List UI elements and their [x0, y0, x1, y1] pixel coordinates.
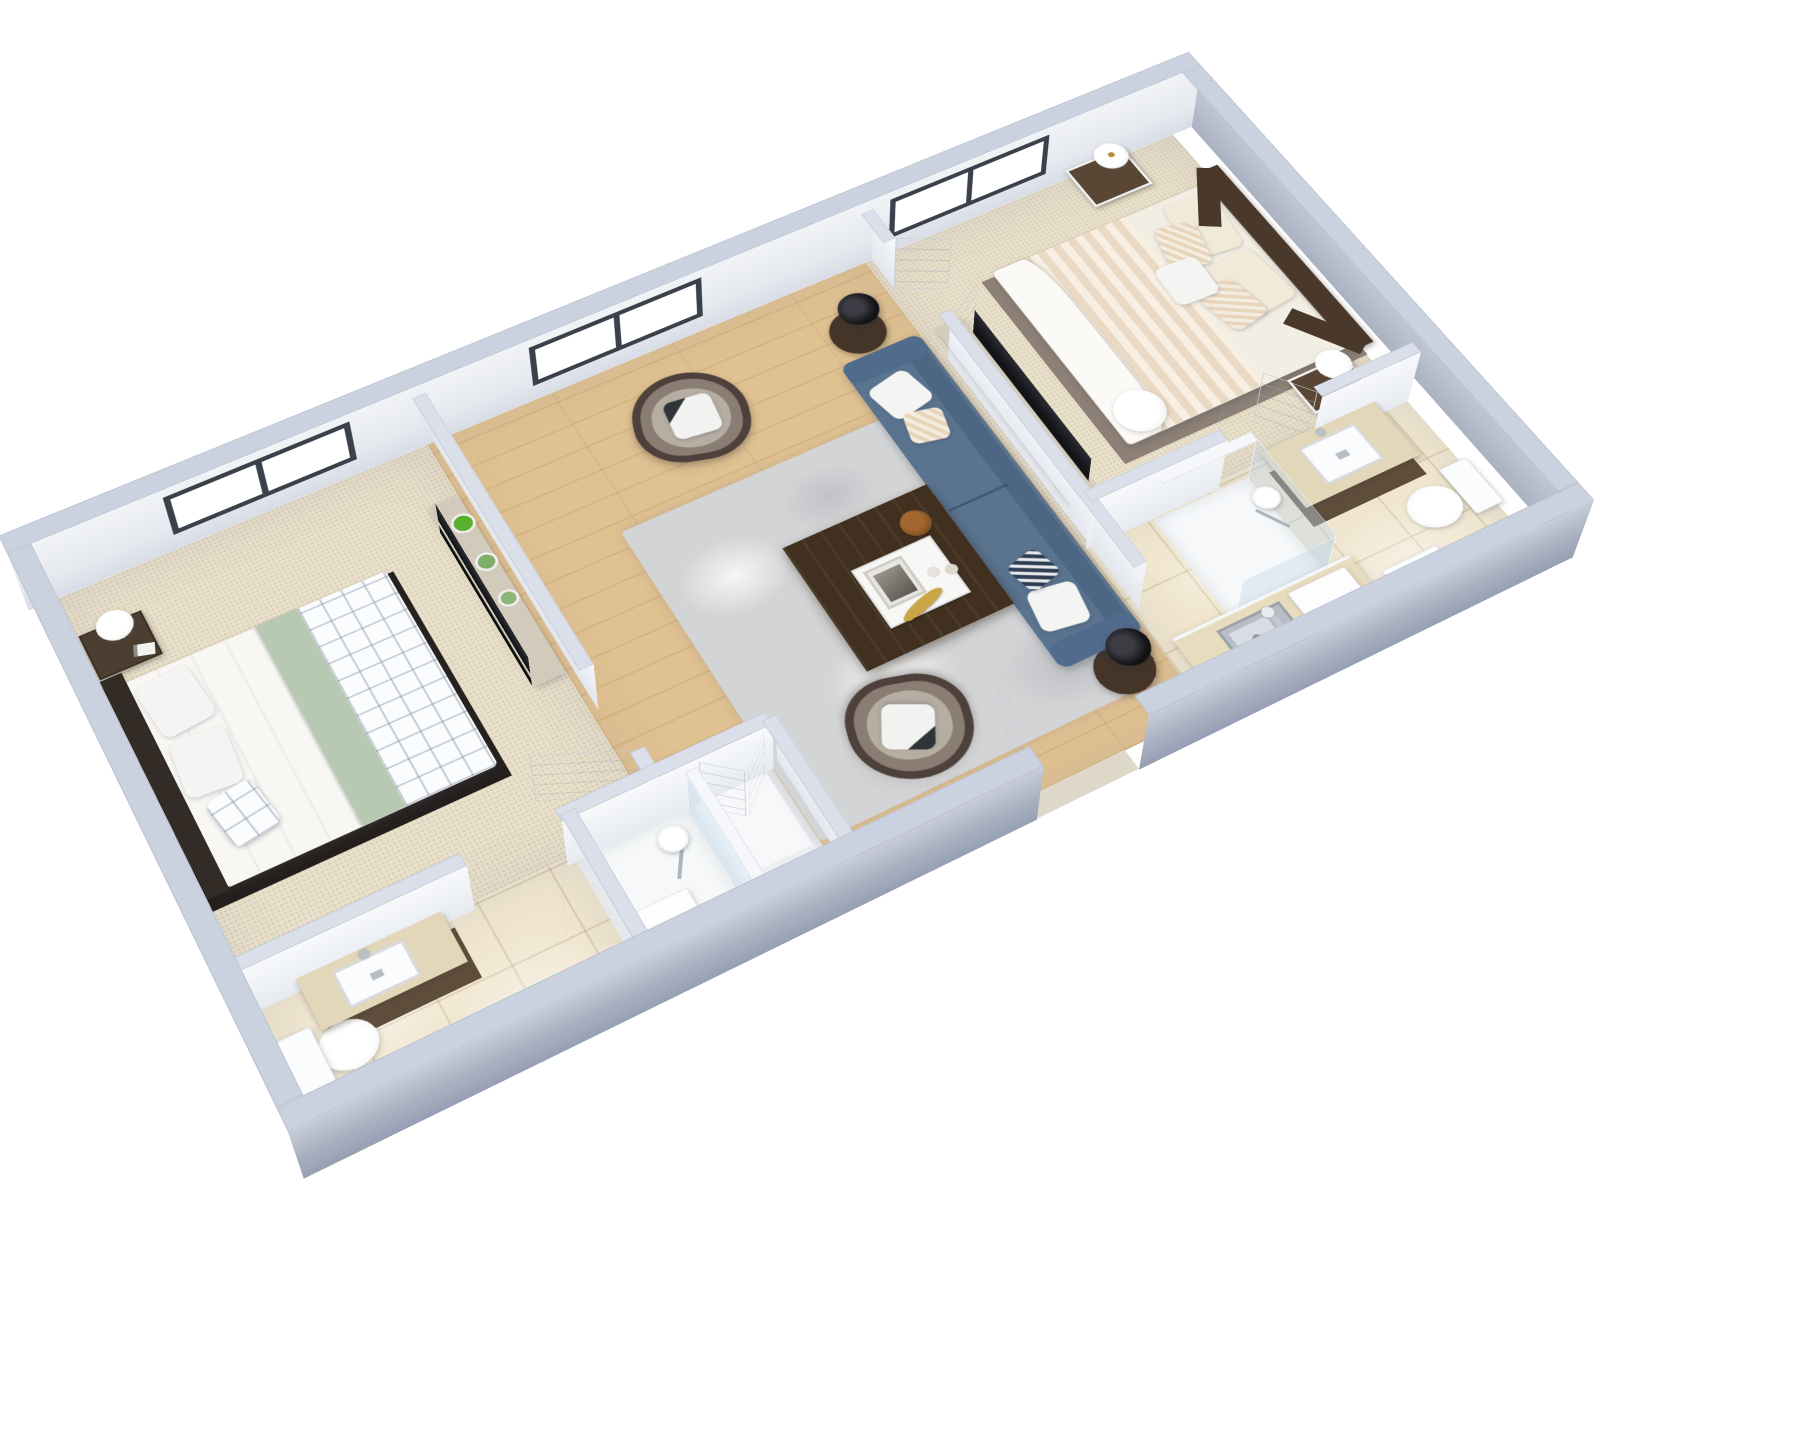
bed3-headboard-wing-top	[1196, 168, 1221, 227]
master-door-leaf-top	[894, 238, 952, 289]
photo-art	[873, 564, 918, 602]
decor-bowl	[894, 506, 938, 541]
vanity3-drain	[1335, 449, 1351, 460]
sofa-pillow-striped-top	[902, 406, 953, 445]
vanity3-sink	[1298, 423, 1385, 485]
sofa-seat-split	[949, 484, 1009, 512]
render-canvas	[0, 0, 1798, 1456]
vanity2-drain	[370, 969, 385, 981]
armchair-bottom-pillow	[881, 704, 936, 749]
